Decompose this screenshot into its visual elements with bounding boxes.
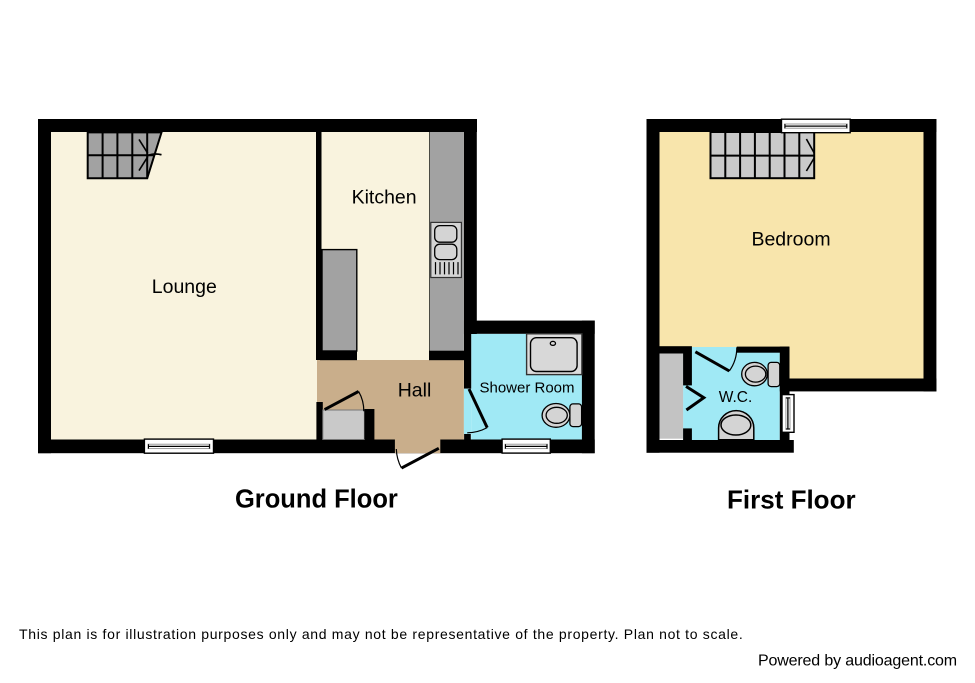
svg-text:W.C.: W.C. <box>719 389 753 406</box>
svg-text:Bedroom: Bedroom <box>751 229 830 251</box>
svg-text:Hall: Hall <box>398 380 432 402</box>
svg-text:Shower Room: Shower Room <box>479 379 574 396</box>
svg-text:This plan is for illustration: This plan is for illustration purposes o… <box>19 626 743 642</box>
svg-text:Ground Floor: Ground Floor <box>235 486 398 514</box>
svg-text:First Floor: First Floor <box>727 484 856 514</box>
svg-text:Kitchen: Kitchen <box>352 187 417 209</box>
svg-text:Powered by audioagent.com: Powered by audioagent.com <box>758 653 957 670</box>
svg-text:Lounge: Lounge <box>152 276 217 298</box>
